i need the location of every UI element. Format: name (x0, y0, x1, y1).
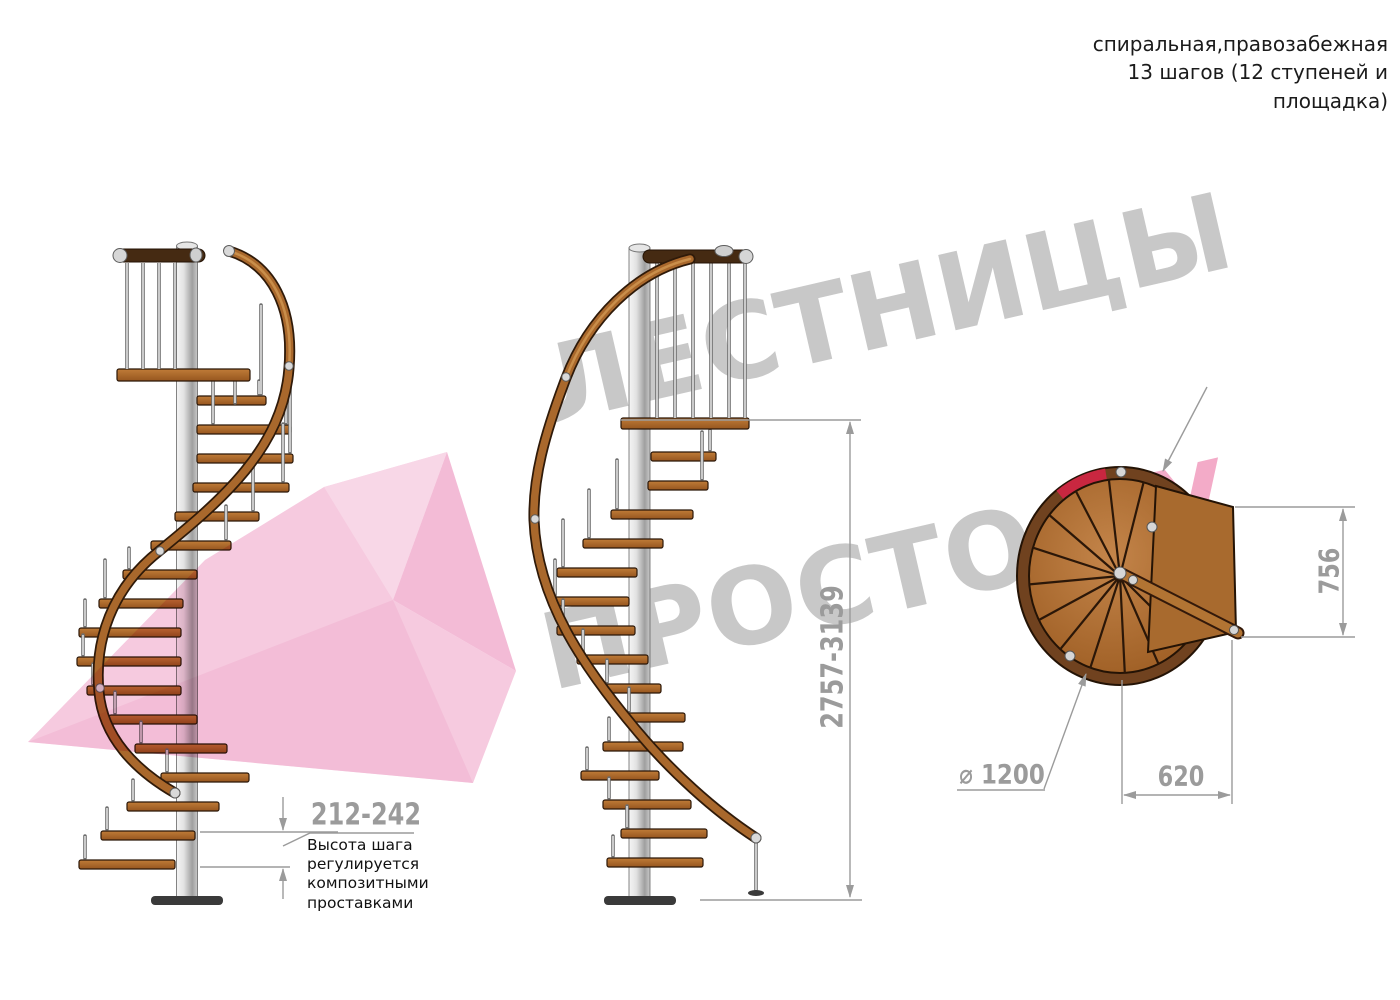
dimension-lines (0, 0, 1400, 1000)
drawing-page: ЛЕСТНИЦЫ ПРОСТО.РУ (0, 0, 1400, 1000)
